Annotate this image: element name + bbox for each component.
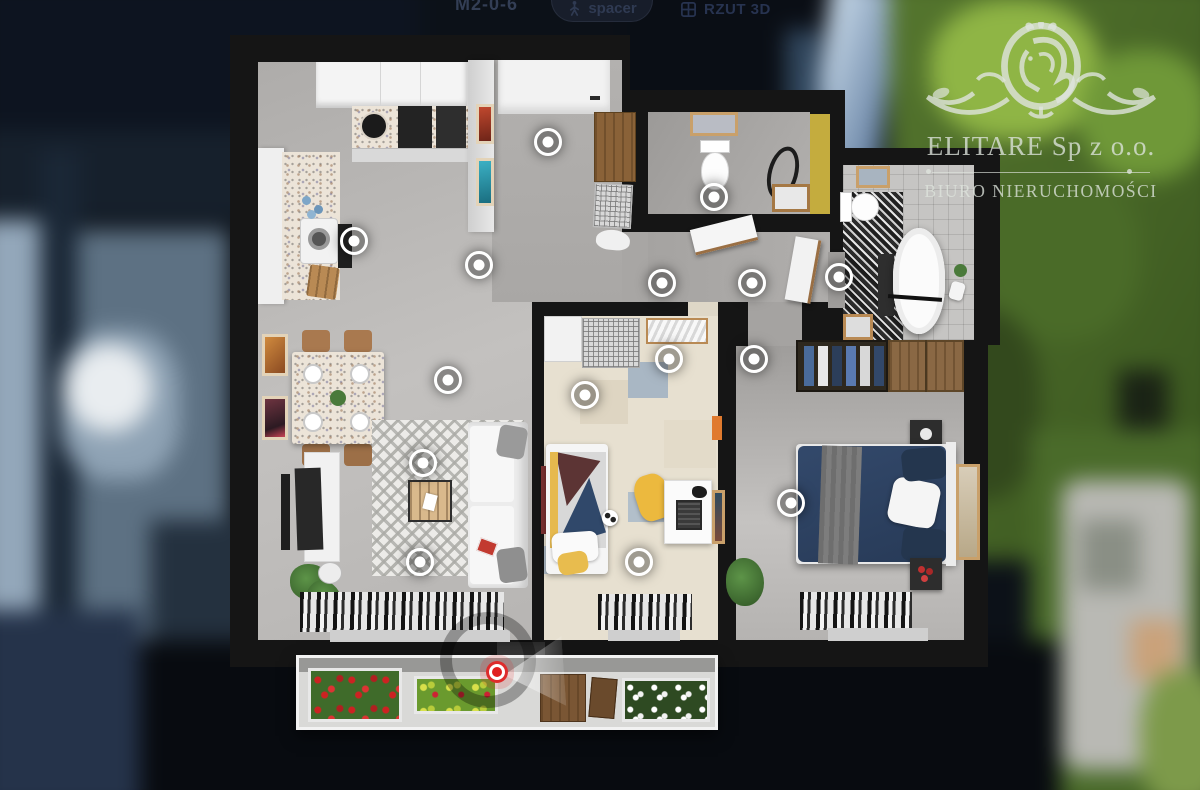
- kids-door-gap: [688, 302, 718, 316]
- bed-pillow-white: [886, 476, 943, 531]
- bedroom-door-gap: [748, 302, 802, 346]
- kitchen-upper-cabinets: [316, 62, 468, 108]
- entry-door-mat: [498, 60, 610, 114]
- dinner-plate: [303, 364, 323, 384]
- bedroom-wall-art: [956, 464, 980, 560]
- window-sill: [608, 630, 680, 641]
- bed-pillow-navy: [900, 446, 947, 482]
- kids-window-curtain: [598, 594, 692, 630]
- kitchen-cabinet-fronts: [352, 148, 470, 162]
- laptop: [676, 500, 702, 530]
- dinner-plate: [303, 412, 323, 432]
- nav-hotspot-hall[interactable]: [465, 251, 493, 279]
- wall-art: [262, 334, 288, 376]
- nav-hotspot-corridor-left[interactable]: [648, 269, 676, 297]
- wall-shelf: [281, 474, 290, 550]
- shoe-bench: [593, 183, 633, 229]
- nav-hotspot-kitchen[interactable]: [340, 227, 368, 255]
- plant-pot: [318, 562, 342, 584]
- kids-wall-art: [712, 490, 725, 544]
- kids-ceiling-lamp: [646, 318, 708, 344]
- nightstand-flower-white: [920, 428, 932, 440]
- nightstand: [910, 558, 942, 590]
- nav-hotspot-kids-room-window[interactable]: [625, 548, 653, 576]
- nightstand-flower-red: [918, 566, 925, 573]
- wall-art: [262, 396, 288, 440]
- balcony-planter-white: [622, 678, 710, 722]
- kids-poster: [712, 416, 722, 440]
- current-position-marker[interactable]: [492, 667, 502, 677]
- watermark: ELITARE Sp z o.o. BIURO NIERUCHOMOŚCI: [916, 22, 1166, 202]
- kids-wardrobe: [544, 316, 582, 362]
- nav-hotspot-kids-room-door[interactable]: [655, 345, 683, 373]
- window-sill: [828, 628, 928, 641]
- hanging-clothes: [804, 346, 814, 386]
- nav-hotspot-bedroom-door[interactable]: [740, 345, 768, 373]
- walk-button-label: spacer: [588, 0, 636, 17]
- lion-crest-icon: [916, 22, 1166, 122]
- kids-floor-patch: [664, 420, 716, 468]
- nav-hotspot-bedroom[interactable]: [777, 489, 805, 517]
- walk-mode-button[interactable]: spacer: [551, 0, 653, 22]
- unit-label: M2-0-6: [455, 0, 518, 15]
- wc-yellow-wall: [810, 114, 830, 214]
- nav-hotspot-living-rug[interactable]: [409, 449, 437, 477]
- sofa-pillow: [496, 546, 528, 584]
- watermark-divider: [922, 171, 1160, 174]
- kitchen-appliance: [436, 106, 466, 148]
- watermark-company: ELITARE Sp z o.o.: [916, 131, 1166, 162]
- nav-hotspot-living-north[interactable]: [434, 366, 462, 394]
- entry-wardrobe: [594, 112, 636, 182]
- table-centerpiece: [330, 390, 346, 406]
- wc-wall-art: [690, 112, 738, 136]
- dinner-plate: [350, 364, 370, 384]
- entry-door-handle: [590, 96, 600, 100]
- tv: [295, 468, 324, 551]
- soccer-ball: [602, 510, 618, 526]
- cutting-board: [306, 264, 340, 300]
- wardrobe-door-seam: [925, 340, 927, 392]
- dining-chair: [302, 330, 330, 352]
- kitchen-cooktop: [398, 106, 432, 148]
- dining-chair: [344, 330, 372, 352]
- bed-headboard: [946, 442, 956, 566]
- bathroom-mat: [843, 314, 873, 340]
- bathtub: [893, 228, 945, 334]
- watermark-subtitle: BIURO NIERUCHOMOŚCI: [916, 181, 1166, 202]
- bathroom-toilet-bowl: [851, 193, 879, 221]
- kitchen-cabinet-seam: [380, 62, 381, 108]
- bathroom-vanity: [878, 254, 894, 316]
- wc-sink-unit: [772, 184, 810, 212]
- kitchen-side-panel: [258, 148, 284, 304]
- view-button-label: RZUT 3D: [704, 1, 771, 18]
- view-3d-button[interactable]: RZUT 3D: [680, 0, 771, 18]
- virtual-tour-viewer: ELITARE Sp z o.o. BIURO NIERUCHOMOŚCI: [0, 0, 1200, 790]
- bedroom-plant: [726, 558, 764, 606]
- floorplan-grid-icon: [680, 1, 697, 18]
- nav-hotspot-kids-room[interactable]: [571, 381, 599, 409]
- bathroom-plant: [954, 264, 967, 277]
- dining-chair: [344, 444, 372, 466]
- top-toolbar: M2-0-6 spacer RZUT 3D: [0, 0, 1200, 28]
- marker-pulse-ring: [440, 612, 536, 708]
- nav-hotspot-wc[interactable]: [700, 183, 728, 211]
- balcony-planter-red: [308, 668, 402, 722]
- bedroom-window-curtain: [800, 592, 912, 630]
- kitchen-cabinet-seam: [420, 62, 421, 108]
- nav-hotspot-living-south[interactable]: [406, 548, 434, 576]
- balcony-chair: [588, 677, 617, 719]
- nav-hotspot-entry[interactable]: [534, 128, 562, 156]
- walk-icon: [567, 0, 582, 17]
- wall-art: [476, 158, 494, 206]
- desk-lamp: [692, 486, 707, 498]
- nav-hotspot-corridor-right[interactable]: [738, 269, 766, 297]
- dinner-plate: [350, 412, 370, 432]
- entry-wall: [468, 60, 494, 232]
- blue-dishes: [302, 196, 311, 205]
- kitchen-sink: [362, 114, 386, 138]
- kids-wardrobe-mesh: [582, 318, 640, 368]
- bathroom-wall-art: [856, 166, 890, 188]
- sofa-pillow: [495, 424, 528, 460]
- washing-machine-door: [308, 228, 330, 250]
- bed-throw: [818, 445, 862, 564]
- nav-hotspot-bathroom-door[interactable]: [825, 263, 853, 291]
- wall-art: [476, 104, 494, 144]
